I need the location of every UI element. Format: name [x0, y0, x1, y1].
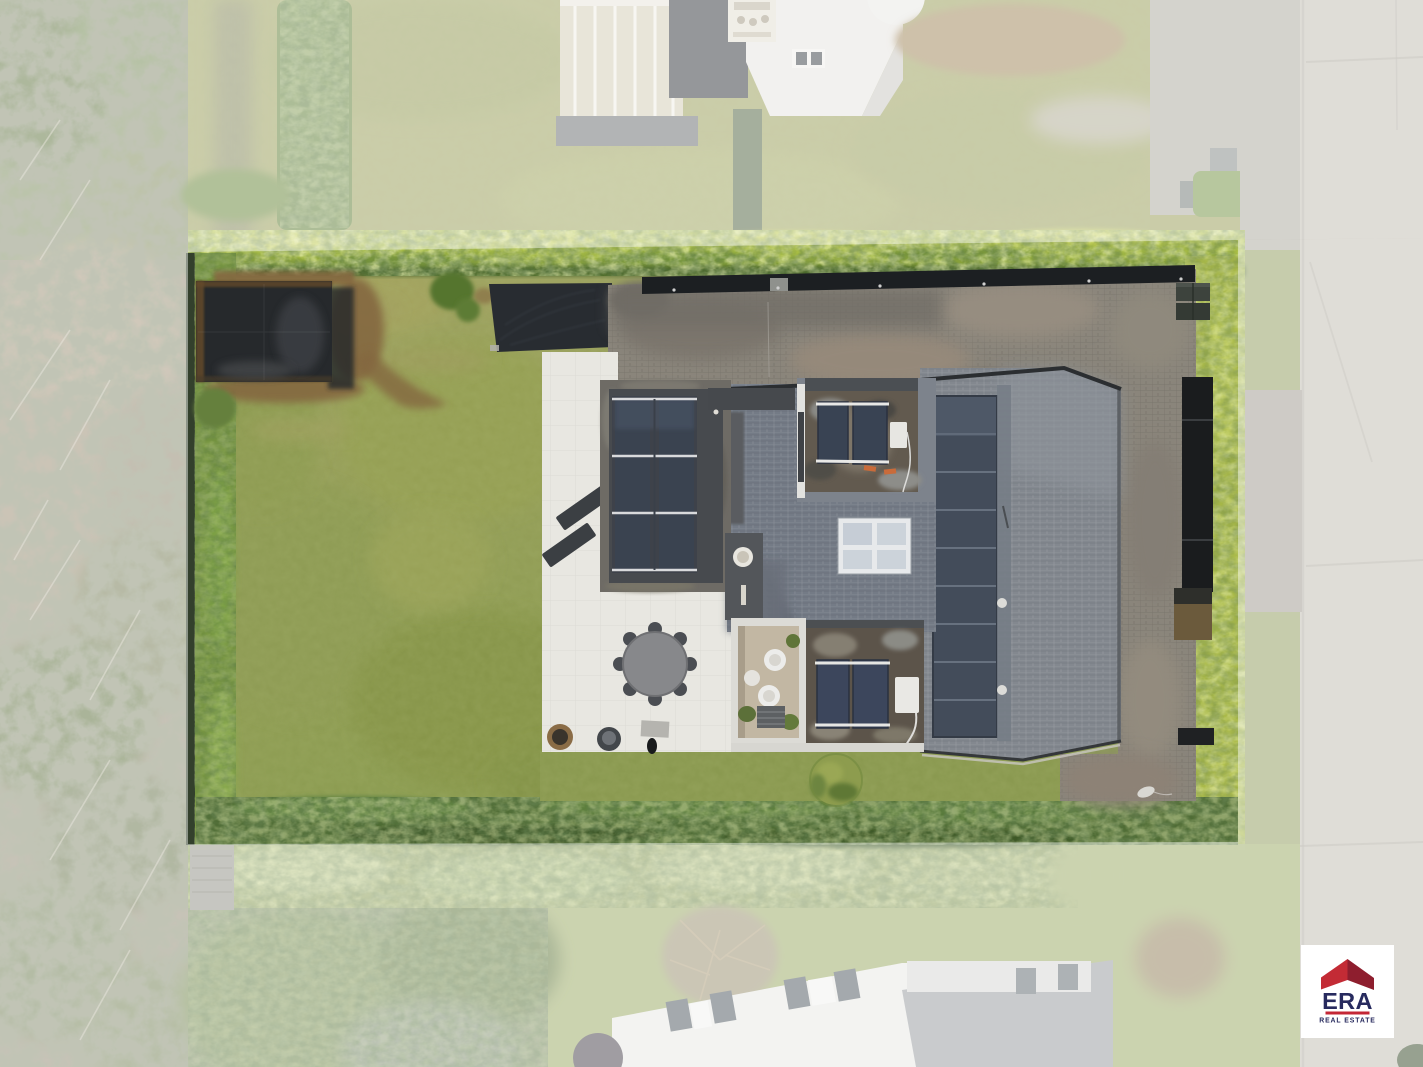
svg-text:ERA: ERA: [1322, 988, 1373, 1014]
svg-text:REAL ESTATE: REAL ESTATE: [1319, 1018, 1376, 1025]
